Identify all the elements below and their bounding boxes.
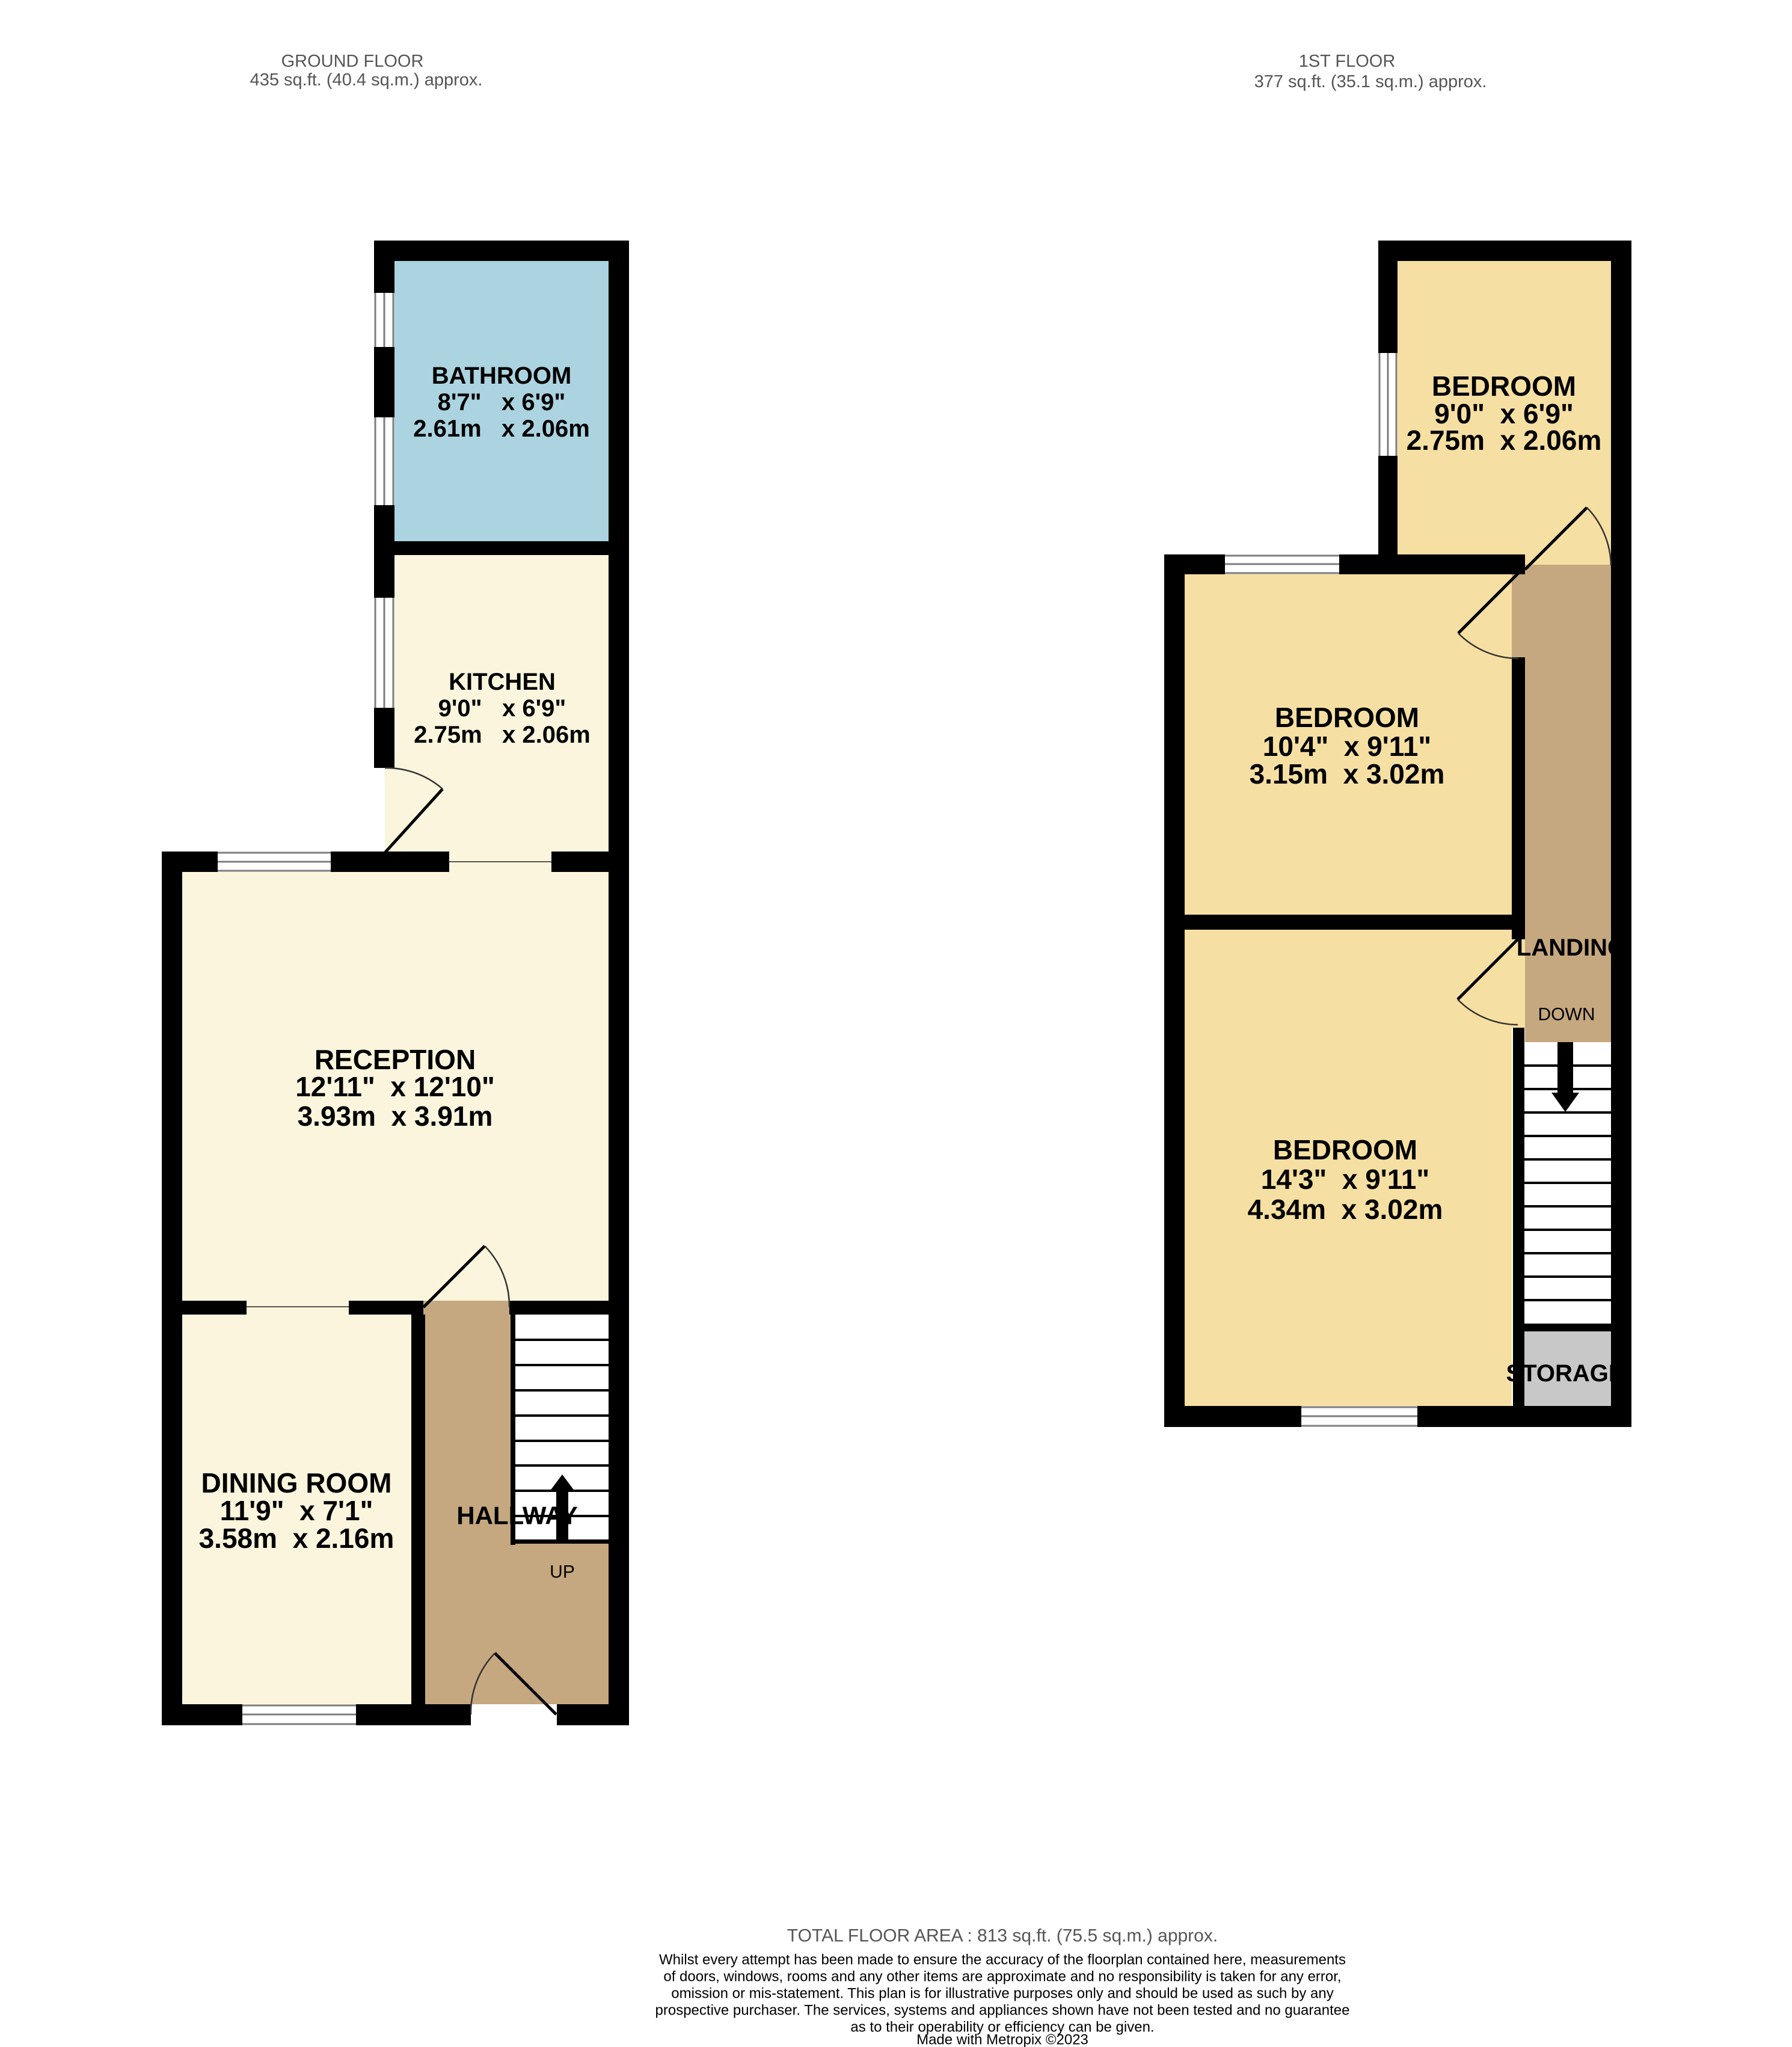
svg-text:DINING ROOM: DINING ROOM <box>201 1467 392 1499</box>
svg-text:DOWN: DOWN <box>1538 1005 1595 1025</box>
svg-text:2.61m x 2.06m: 2.61m x 2.06m <box>413 416 590 442</box>
svg-text:435 sq.ft. (40.4 sq.m.) approx: 435 sq.ft. (40.4 sq.m.) approx. <box>250 70 483 90</box>
svg-text:GROUND FLOOR: GROUND FLOOR <box>281 52 424 71</box>
svg-text:BEDROOM: BEDROOM <box>1275 702 1419 733</box>
svg-text:Made with Metropix ©2023: Made with Metropix ©2023 <box>916 2032 1088 2047</box>
svg-text:KITCHEN: KITCHEN <box>449 669 556 695</box>
svg-text:3.58m x 2.16m: 3.58m x 2.16m <box>199 1523 394 1554</box>
svg-text:9'0" x 6'9": 9'0" x 6'9" <box>438 695 566 722</box>
svg-text:BEDROOM: BEDROOM <box>1273 1134 1417 1165</box>
svg-text:LANDING: LANDING <box>1517 934 1626 961</box>
svg-text:1ST FLOOR: 1ST FLOOR <box>1299 52 1396 71</box>
svg-text:3.15m x 3.02m: 3.15m x 3.02m <box>1250 758 1445 790</box>
svg-text:omission or mis-statement. Thi: omission or mis-statement. This plan is … <box>671 1986 1333 2002</box>
svg-text:BEDROOM: BEDROOM <box>1432 370 1576 402</box>
svg-text:11'9" x 7'1": 11'9" x 7'1" <box>220 1495 373 1526</box>
svg-text:377 sq.ft. (35.1 sq.m.) approx: 377 sq.ft. (35.1 sq.m.) approx. <box>1254 72 1487 91</box>
svg-text:2.75m x 2.06m: 2.75m x 2.06m <box>414 722 591 748</box>
svg-text:10'4" x 9'11": 10'4" x 9'11" <box>1263 731 1431 762</box>
svg-text:8'7" x 6'9": 8'7" x 6'9" <box>438 389 566 416</box>
svg-text:of doors, windows, rooms and a: of doors, windows, rooms and any other i… <box>663 1969 1341 1985</box>
svg-text:4.34m x 3.02m: 4.34m x 3.02m <box>1248 1194 1443 1225</box>
svg-text:3.93m x 3.91m: 3.93m x 3.91m <box>298 1100 493 1132</box>
svg-text:UP: UP <box>550 1562 575 1582</box>
svg-text:14'3" x 9'11": 14'3" x 9'11" <box>1261 1164 1429 1195</box>
svg-text:prospective purchaser. The ser: prospective purchaser. The services, sys… <box>655 2002 1350 2019</box>
svg-text:TOTAL FLOOR AREA : 813 sq.ft.: TOTAL FLOOR AREA : 813 sq.ft. (75.5 sq.m… <box>787 1926 1218 1946</box>
svg-text:12'11" x 12'10": 12'11" x 12'10" <box>295 1071 495 1102</box>
svg-text:BATHROOM: BATHROOM <box>432 363 572 389</box>
svg-text:2.75m x 2.06m: 2.75m x 2.06m <box>1407 425 1602 456</box>
svg-text:Whilst every attempt has been: Whilst every attempt has been made to en… <box>659 1952 1346 1968</box>
